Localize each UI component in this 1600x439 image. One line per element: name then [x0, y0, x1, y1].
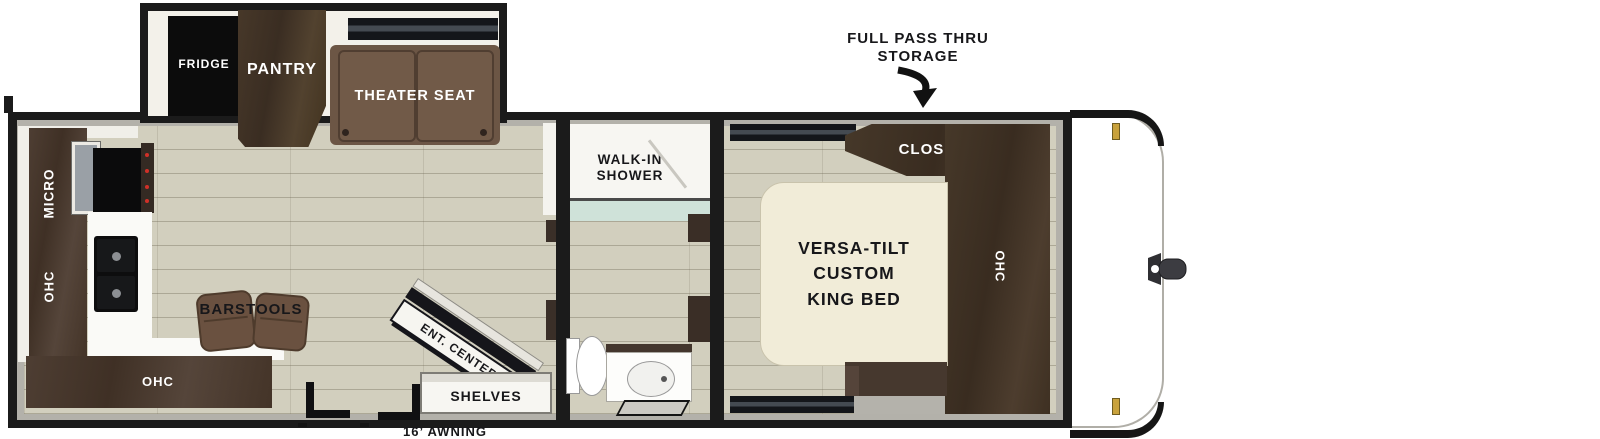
vanity-backsplash: [606, 344, 692, 352]
pantry-label: PANTRY: [238, 60, 326, 79]
shelves-unit: SHELVES: [420, 372, 552, 414]
door-frame-mark: [546, 220, 556, 242]
slideout-window: [348, 18, 498, 40]
stove-knob-icon: [145, 185, 149, 189]
storage-callout-line1: FULL PASS THRU: [847, 30, 989, 47]
hitch-coupler-icon: [1146, 250, 1190, 288]
vanity-sink: [627, 361, 675, 397]
sink-basin: [97, 276, 135, 309]
micro-label: MICRO: [42, 168, 57, 218]
king-bed-label-line2: CUSTOM: [813, 263, 895, 283]
awning-label: 16’ AWNING: [395, 424, 495, 439]
floorplan-canvas: FULL PASS THRU STORAGE FRIDGE PANTRY THE…: [0, 0, 1600, 439]
king-bed-label-line1: VERSA-TILT: [798, 238, 910, 258]
wall-stub: [4, 96, 13, 113]
barstool: [195, 289, 257, 353]
faucet-icon: [661, 376, 667, 382]
clearance-light: [1112, 123, 1120, 140]
stove-knob-panel: [141, 143, 154, 213]
stove: [93, 148, 141, 212]
pantry: PANTRY: [238, 10, 326, 147]
awning-tick: [360, 423, 369, 427]
storage-callout-arrow-icon: [892, 66, 938, 110]
seat-cupholder-icon: [342, 129, 349, 136]
king-bed: VERSA-TILT CUSTOM KING BED: [760, 182, 948, 366]
kitchen-ohc-label-wrap: OHC: [28, 246, 70, 326]
fridge: FRIDGE: [168, 16, 240, 116]
shower-label-line2: SHOWER: [597, 168, 664, 183]
storage-callout-line2: STORAGE: [878, 48, 959, 65]
bedroom-window-top: [730, 124, 856, 141]
bath-wall-cabinet: [688, 214, 710, 242]
stove-knob-icon: [145, 199, 149, 203]
shower-label-line1: WALK-IN: [598, 152, 663, 167]
walk-in-shower: WALK-IN SHOWER: [570, 124, 710, 198]
theater-seat-label: THEATER SEAT: [330, 88, 500, 105]
kitchen-ohc-wall-label: OHC: [41, 270, 56, 302]
clearance-light: [1112, 398, 1120, 415]
bathroom-wall-right: [710, 112, 724, 428]
entry-step-marker: [378, 384, 420, 420]
kitchen-ohc-base-label: OHC: [118, 374, 198, 390]
king-bed-label: VERSA-TILT CUSTOM KING BED: [798, 236, 910, 312]
stove-knob-icon: [145, 153, 149, 157]
nightstand: [845, 362, 947, 396]
bedroom-ohc-label: OHC: [992, 250, 1007, 282]
awning-tick: [298, 423, 307, 427]
micro-label-wrap: MICRO: [28, 150, 70, 236]
theater-seat: THEATER SEAT: [330, 45, 500, 145]
seat-cupholder-icon: [480, 129, 487, 136]
entry-step-marker: [306, 382, 350, 418]
storage-callout-label: FULL PASS THRU STORAGE: [838, 30, 998, 66]
door-frame-mark: [546, 300, 556, 340]
bedroom-window-bottom: [730, 396, 856, 413]
shower-label: WALK-IN SHOWER: [580, 152, 680, 184]
sink-drain-icon: [112, 252, 121, 261]
vanity: [606, 352, 692, 402]
toilet: [576, 336, 608, 396]
bath-mat: [616, 400, 691, 416]
sink-drain-icon: [112, 289, 121, 298]
kitchen-sink: [94, 236, 138, 312]
bath-wall-cabinet: [688, 296, 710, 342]
bedroom-ohc-label-wrap: OHC: [978, 226, 1022, 306]
fridge-label: FRIDGE: [168, 57, 240, 71]
nightstand-step: [845, 366, 859, 396]
shelves-label: SHELVES: [422, 388, 550, 405]
barstools-label: BARSTOOLS: [196, 301, 306, 319]
stove-knob-icon: [145, 169, 149, 173]
sink-basin: [97, 239, 135, 272]
shelves-top-face: [422, 374, 550, 382]
king-bed-label-line3: KING BED: [807, 289, 901, 309]
